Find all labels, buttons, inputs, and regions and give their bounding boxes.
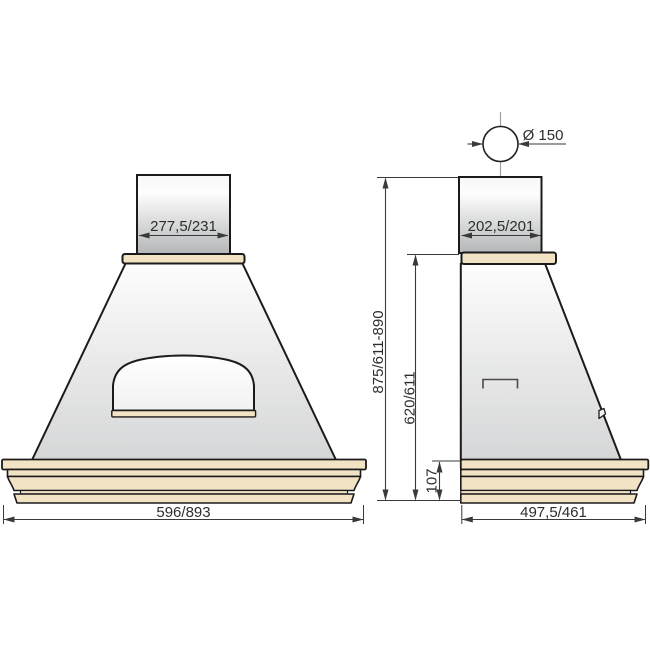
arrow-down-icon bbox=[383, 490, 389, 501]
side-base-top-lip bbox=[461, 460, 649, 470]
side-chimney bbox=[459, 177, 542, 253]
arrow-left-icon bbox=[4, 517, 15, 523]
arrow-down-icon bbox=[413, 490, 419, 501]
body-height-label: 620/611 bbox=[402, 371, 419, 424]
front-width-dim: 596/893 bbox=[4, 504, 364, 524]
side-overall-depth-label: 497,5/461 bbox=[520, 504, 587, 521]
side-base-bottom bbox=[461, 494, 637, 503]
front-base-band bbox=[8, 470, 361, 477]
body-height-dim: 620/611 bbox=[402, 255, 460, 501]
side-mantel-shelf bbox=[462, 253, 557, 265]
arrow-up-icon bbox=[413, 255, 419, 266]
front-base-top-lip bbox=[2, 460, 366, 470]
side-view: Ø 150 202,5/201 875/611-890 bbox=[370, 112, 648, 524]
front-base-ogee bbox=[8, 477, 361, 491]
front-arch-sill bbox=[112, 411, 256, 417]
base-height-dim: 107 bbox=[424, 461, 461, 501]
side-chimney-depth-dim: 202,5/201 bbox=[461, 218, 541, 239]
front-base-molding bbox=[2, 460, 366, 504]
arrow-right-icon bbox=[635, 517, 646, 523]
total-height-label: 875/611-890 bbox=[370, 310, 387, 393]
side-hood-body bbox=[461, 264, 621, 461]
arrow-up-icon bbox=[383, 178, 389, 189]
front-mantel-shelf bbox=[123, 254, 245, 264]
arrow-right-icon bbox=[353, 517, 364, 523]
front-overall-width-label: 596/893 bbox=[156, 504, 210, 521]
side-base-band bbox=[461, 470, 644, 477]
total-height-dim: 875/611-890 bbox=[370, 178, 458, 501]
front-chimney bbox=[137, 175, 230, 255]
front-chimney-width-label: 277,5/231 bbox=[150, 218, 217, 235]
technical-drawing: 277,5/231 596/893 bbox=[0, 0, 650, 650]
front-arch-panel bbox=[113, 356, 254, 411]
side-chimney-depth-label: 202,5/201 bbox=[468, 218, 535, 235]
side-base-ogee bbox=[461, 477, 644, 491]
arrow-right-icon bbox=[472, 141, 483, 147]
front-base-bottom bbox=[14, 494, 354, 503]
front-chimney-width-dim: 277,5/231 bbox=[139, 218, 229, 239]
duct-diameter-label: Ø 150 bbox=[523, 127, 564, 144]
hood-dimension-drawing: 277,5/231 596/893 bbox=[0, 0, 650, 650]
duct-circle bbox=[483, 127, 518, 162]
side-base-molding bbox=[461, 460, 649, 504]
front-view: 277,5/231 596/893 bbox=[2, 175, 366, 524]
side-depth-dim: 497,5/461 bbox=[462, 504, 646, 524]
arrow-left-icon bbox=[462, 517, 473, 523]
base-height-label: 107 bbox=[424, 468, 441, 493]
